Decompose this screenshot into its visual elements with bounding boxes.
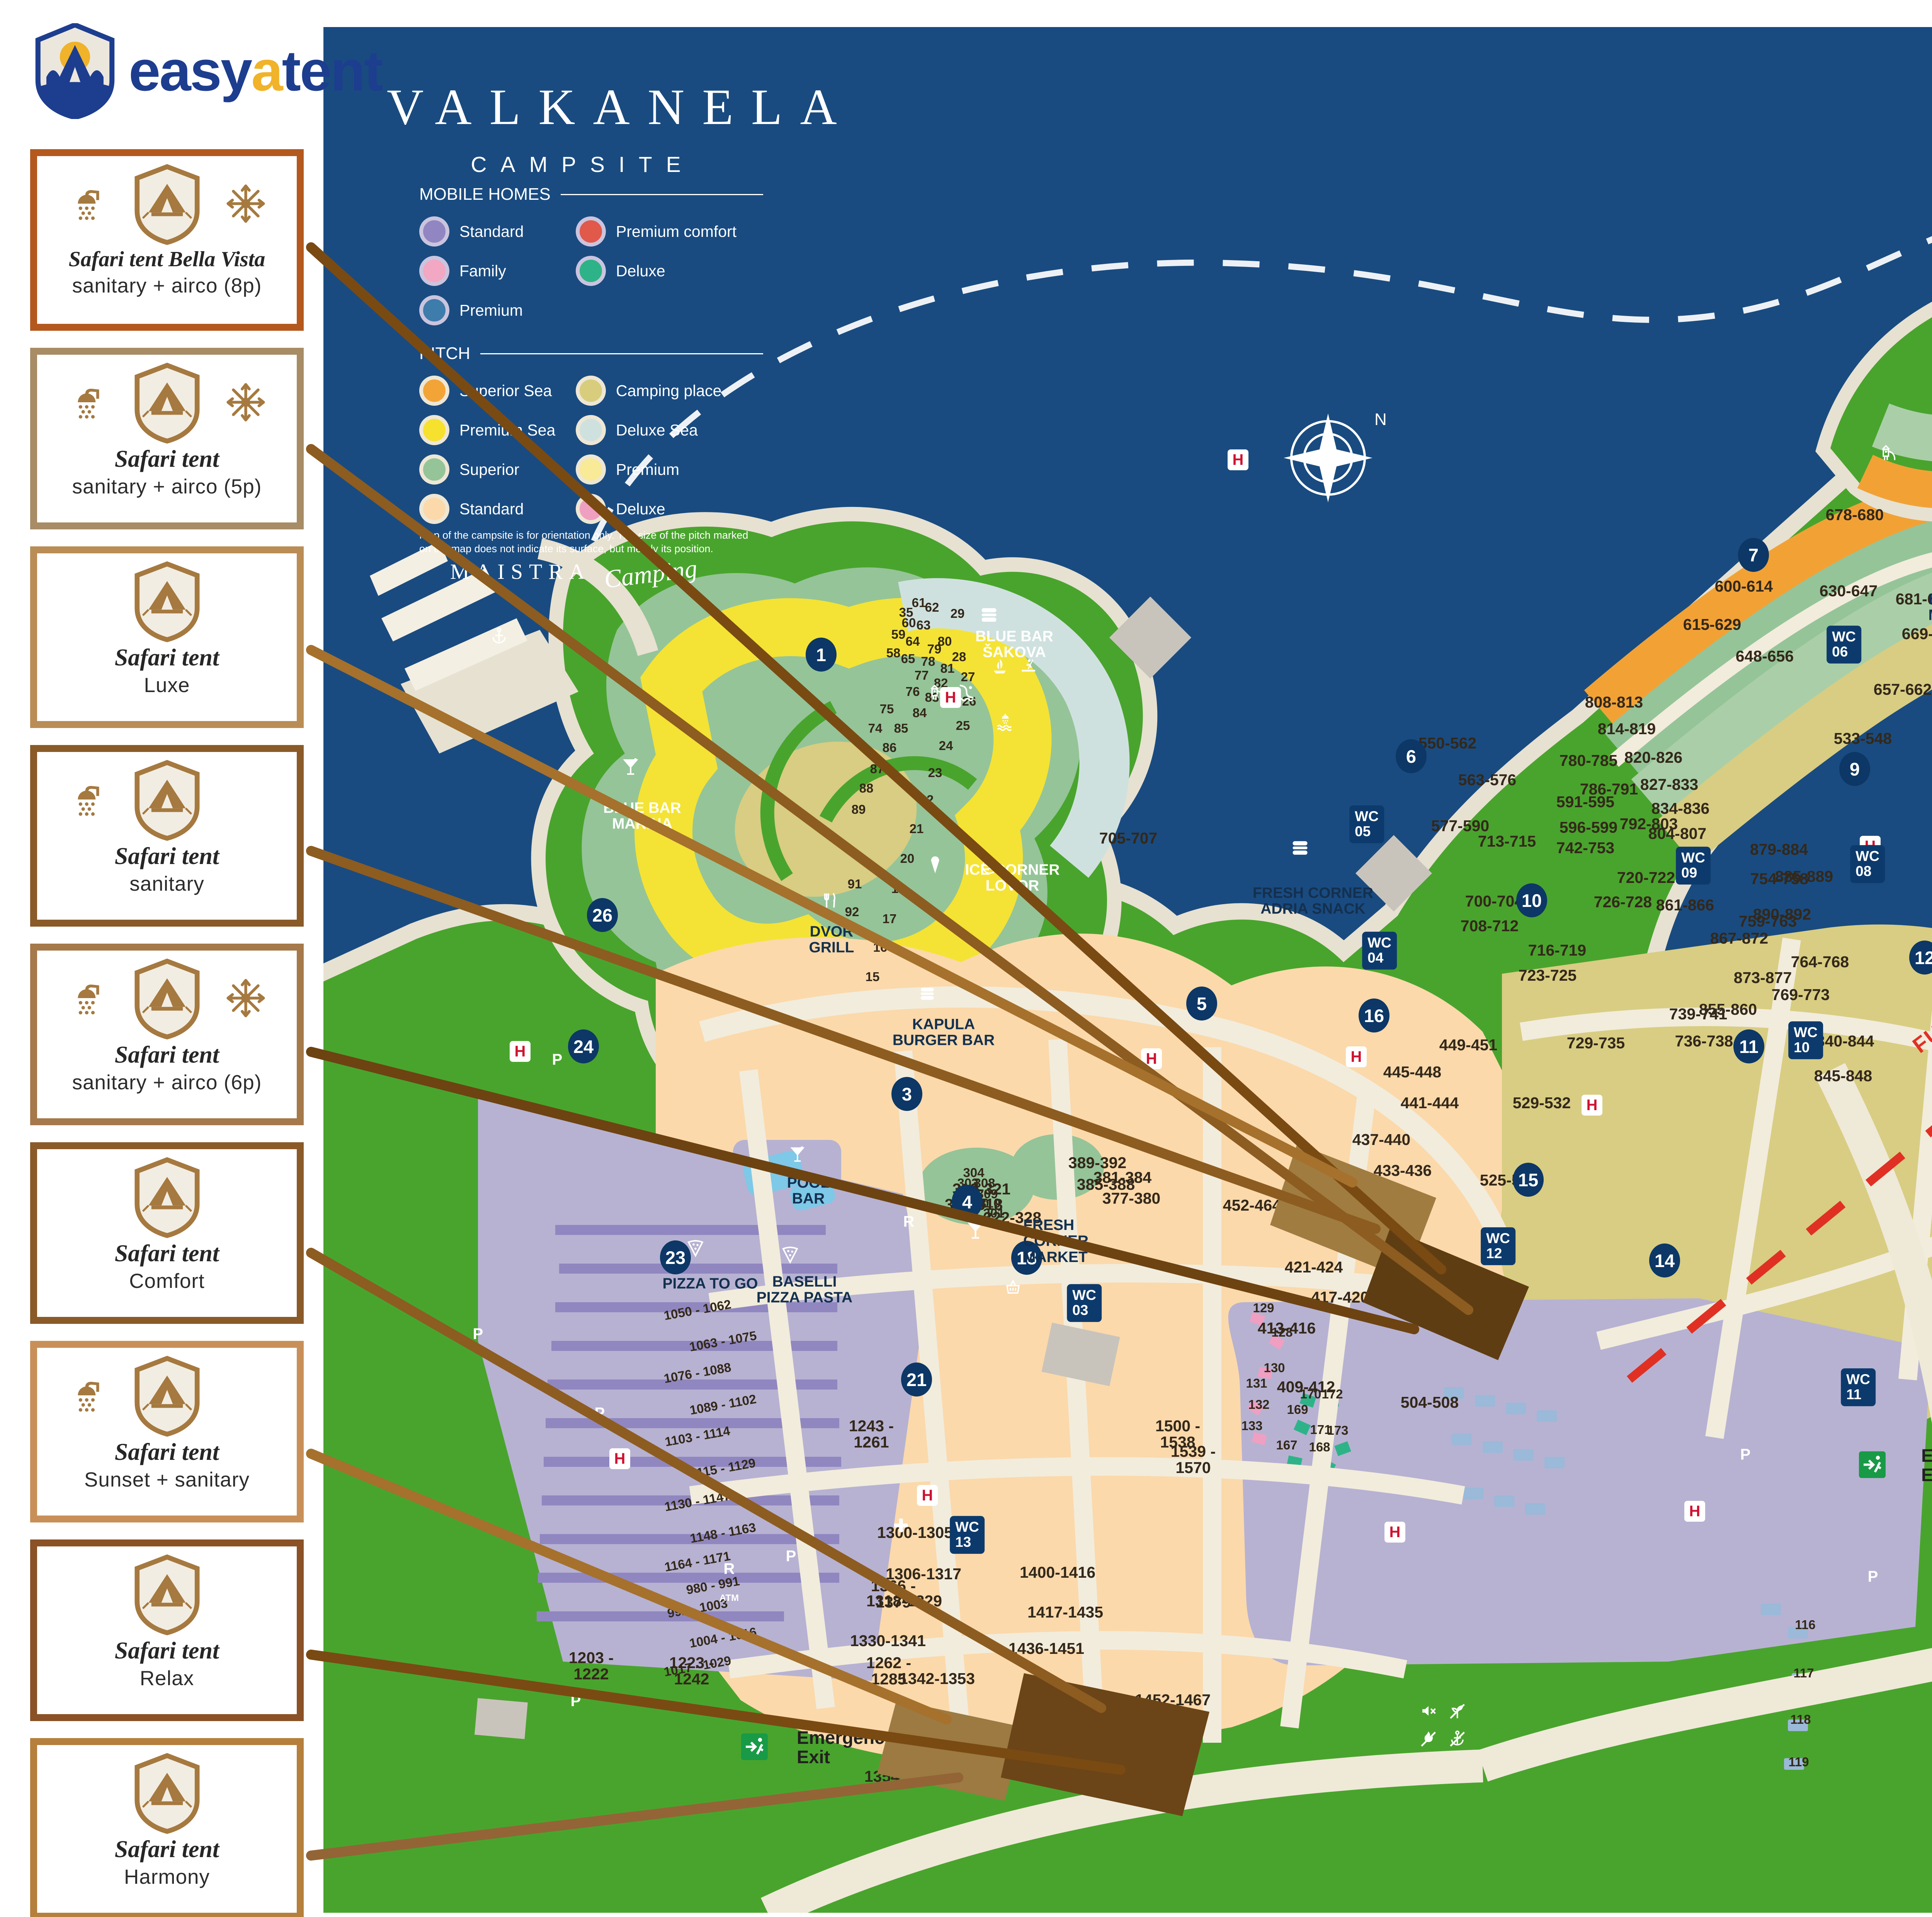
map-label: BLUE BAR ŠAKOVA: [975, 629, 1053, 661]
wc-number: 09: [1681, 866, 1705, 881]
shower-icon: [67, 179, 110, 229]
wc-text: WC: [1681, 850, 1705, 866]
legend-item: Premium Sea: [419, 413, 576, 447]
legend: MOBILE HOMES Standard Premium comfort Fa…: [419, 185, 763, 543]
safari-tent-card[interactable]: Safari tent Harmony: [30, 1738, 304, 1917]
cocktail-icon: [614, 751, 647, 783]
pitch-range-label: 504-508: [1401, 1395, 1459, 1411]
location-marker: 4: [952, 1185, 983, 1219]
pitch-range-label: 1243 - 1261: [849, 1418, 894, 1451]
pitch-range-label: 786-791: [1580, 781, 1638, 798]
map-icon: R: [716, 1556, 742, 1582]
card-title: Safari tent Bella Vista: [37, 248, 297, 270]
map-label: BLUE BAR MARINA: [603, 800, 681, 832]
legend-item: Premium comfort: [576, 215, 763, 248]
pitch-range-label: 441-444: [1401, 1095, 1459, 1111]
easyatent-wordmark: easyatent: [129, 38, 382, 104]
pitch-number: 58: [886, 646, 901, 660]
pitch-range-label: 452-464: [1223, 1197, 1281, 1214]
burger-icon: [1283, 831, 1317, 865]
hydrant-icon: H: [510, 1041, 531, 1062]
legend-label: Camping place: [616, 382, 722, 400]
snowflake-icon: [224, 973, 267, 1023]
burger-icon: [972, 598, 1006, 632]
pitch-range-label: 834-836: [1651, 801, 1709, 817]
wc-text: WC: [1355, 809, 1379, 824]
pitch-range-label: 1417-1435: [1027, 1604, 1103, 1621]
card-subtitle: Relax: [37, 1667, 297, 1690]
pitch-number: 23: [928, 765, 942, 780]
pitch-range-label: 845-848: [1814, 1068, 1872, 1084]
wc-number: 11: [1846, 1387, 1870, 1402]
safari-tent-shield-icon: [131, 561, 203, 640]
location-marker: 12: [1909, 941, 1932, 975]
hydrant-icon: H: [917, 1485, 938, 1506]
legend-item: Superior: [419, 453, 576, 486]
legend-label: Deluxe Sea: [616, 421, 698, 439]
card-subtitle: Harmony: [37, 1865, 297, 1889]
legend-label: Premium comfort: [616, 223, 736, 241]
wc-text: WC: [1367, 936, 1391, 951]
maistra-text: MAISTRA: [450, 560, 591, 584]
pitch-range-label: 509-518: [1432, 1313, 1490, 1330]
pitch-range-label: 1063 - 1075: [688, 1329, 757, 1354]
pitch-range-label: 417-420: [1311, 1289, 1369, 1306]
pitch-range-label: 425-428: [1337, 1225, 1395, 1241]
pitch-number: 74: [868, 721, 883, 736]
hydrant-icon: H: [1384, 1522, 1405, 1543]
card-title: Safari tent: [37, 646, 297, 670]
legend-label: Premium: [616, 461, 679, 479]
easyatent-shield-icon: [33, 23, 117, 119]
pizza-icon: [775, 1239, 805, 1269]
legend-item: Superior Sea: [419, 374, 576, 407]
pitch-range-label: 804-807: [1648, 826, 1706, 842]
legend-swatch: [576, 494, 606, 524]
wc-number: 06: [1832, 645, 1856, 660]
pitch-number: 169: [1287, 1402, 1308, 1417]
pitch-range-label: 808-813: [1585, 694, 1643, 711]
pitch-number: 15: [866, 970, 880, 984]
card-title: Safari tent: [37, 1837, 297, 1861]
hydrant-icon: H: [940, 687, 961, 708]
pitch-range-label: 827-833: [1640, 777, 1698, 793]
legend-swatch: [419, 415, 449, 445]
playground-icon: [1876, 439, 1903, 467]
map-label: ICE CORNER LOVOR: [965, 862, 1060, 894]
pitch-number: 92: [845, 905, 859, 919]
wc-marker: WC05: [1349, 805, 1384, 843]
legend-label: Standard: [459, 223, 524, 241]
safari-tent-shield-icon: [131, 1157, 203, 1236]
legend-label: Deluxe: [616, 262, 665, 280]
pitch-range-label: 1076 - 1088: [663, 1361, 732, 1385]
safari-tent-card[interactable]: Safari tent sanitary + airco (6p): [30, 944, 304, 1125]
hydrant-icon: H: [976, 1723, 997, 1744]
pitch-number: 62: [925, 600, 939, 615]
shower-icon: [67, 774, 110, 825]
map-label: POOL BAR: [787, 1175, 830, 1207]
legend-label: Superior: [459, 461, 519, 479]
wc-number: 05: [1355, 824, 1379, 839]
wc-number: 08: [1855, 864, 1879, 879]
pitch-number: 119: [1788, 1755, 1809, 1769]
legend-swatch: [576, 376, 606, 406]
map-disclaimer: Map of the campsite is for orientation o…: [419, 529, 752, 556]
legend-item: Deluxe: [576, 492, 763, 526]
plant-not-icon: [1444, 1697, 1471, 1725]
pitch-number: 132: [1248, 1397, 1269, 1412]
pitch-range-label: 550-562: [1418, 735, 1476, 752]
legend-item: Deluxe: [576, 254, 763, 287]
card-title: Safari tent: [37, 447, 297, 471]
pitch-range-label: 736-738: [1675, 1033, 1733, 1050]
pitch-range-label: 855-860: [1699, 1002, 1757, 1018]
safari-tent-shield-icon: [131, 1554, 203, 1633]
pitch-number: 21: [910, 822, 924, 836]
pitch-number: 86: [883, 740, 897, 755]
anchor-not-icon: [1444, 1725, 1471, 1753]
pitch-range-label: 615-629: [1683, 617, 1741, 633]
wc-number: 12: [1486, 1246, 1510, 1261]
location-marker: 15: [1513, 1163, 1544, 1197]
card-title: Safari tent: [37, 1639, 297, 1663]
pitch-range-label: 729-735: [1567, 1035, 1625, 1051]
legend-swatch: [419, 256, 449, 286]
safari-tent-shield-icon: [131, 1356, 203, 1435]
wc-number: 03: [1072, 1303, 1096, 1318]
pitch-number: 129: [1253, 1301, 1274, 1315]
pitch-range-label: 873-877: [1734, 970, 1792, 986]
burger-icon: [912, 979, 942, 1009]
pitch-number: 19: [891, 881, 906, 896]
anchor-ch-icon: [485, 622, 513, 650]
wc-number: 10: [1794, 1040, 1818, 1055]
pitch-number: 88: [859, 781, 874, 796]
pitch-range-label: 1223 - 1242: [669, 1655, 714, 1687]
pitch-number: 16: [873, 940, 888, 955]
legend-swatch: [576, 216, 606, 247]
pitch-range-label: 742-753: [1556, 840, 1614, 856]
location-marker: 16: [1359, 998, 1389, 1032]
location-marker: 5: [1186, 987, 1217, 1021]
location-marker: 6: [1396, 739, 1427, 773]
pitch-number: 20: [900, 851, 915, 866]
pitch-range-label: 1330-1341: [850, 1633, 926, 1649]
pitch-range-label: 814-819: [1598, 721, 1656, 737]
card-subtitle: Comfort: [37, 1269, 297, 1293]
wc-number: 04: [1367, 951, 1391, 966]
pitch-range-label: 421-424: [1285, 1259, 1343, 1276]
pitch-range-label: 1004 - 1016: [688, 1625, 757, 1650]
legend-item: Deluxe Sea: [576, 413, 763, 447]
wc-marker: WC08: [1850, 845, 1885, 883]
safari-tent-card[interactable]: Safari tent Luxe: [30, 546, 304, 728]
legend-swatch: [419, 295, 449, 325]
pitch-number: 64: [906, 634, 920, 649]
pitch-number: 63: [917, 618, 931, 633]
card-icons: [37, 1356, 297, 1435]
maistra-camping-script: Camping: [602, 554, 699, 595]
map-label: FRESH CORNER ADRIA SNACK: [1253, 885, 1373, 917]
wc-text: WC: [1072, 1288, 1096, 1303]
wc-text: WC: [955, 1520, 979, 1535]
safari-tent-card[interactable]: Safari tent Bella Vista sanitary + airco…: [30, 149, 304, 331]
pitch-range-label: 1050 - 1062: [663, 1298, 732, 1322]
legend-pitch: Superior Sea Camping place Premium Sea D…: [419, 374, 763, 526]
hydrant-icon: H: [1141, 1048, 1162, 1069]
location-marker: 20: [933, 1746, 964, 1780]
pitch-range-label: 533-548: [1834, 731, 1892, 747]
pitch-range-label: 385-388: [1077, 1177, 1135, 1193]
pitch-number: 59: [891, 627, 906, 642]
exit-icon: [1850, 1443, 1894, 1486]
snowflake-icon: [224, 179, 267, 229]
pitch-number: 84: [913, 706, 927, 720]
hydrant-icon: H: [1182, 1721, 1202, 1742]
legend-mobile-homes: Standard Premium comfort Family Deluxe P…: [419, 215, 763, 327]
location-marker: 23: [660, 1240, 691, 1274]
wc-marker: WC10: [1788, 1021, 1823, 1059]
pitch-number: 172: [1321, 1387, 1343, 1402]
legend-swatch: [576, 454, 606, 485]
pitch-number: 78: [921, 654, 935, 669]
wc-text: WC: [1794, 1025, 1818, 1040]
legend-label: Premium: [459, 301, 523, 320]
legend-label: Family: [459, 262, 506, 280]
legend-item: Family: [419, 254, 576, 287]
pitch-range-label: 1148 - 1163: [689, 1521, 757, 1545]
campsite-type: CAMPSITE: [369, 152, 782, 177]
location-marker: 3: [891, 1077, 922, 1111]
pitch-range-label: 1354 -: [864, 1769, 909, 1785]
legend-swatch: [576, 415, 606, 445]
pitch-number: 89: [852, 802, 866, 817]
pitch-number: 81: [940, 661, 955, 676]
shower-beach-icon: [992, 708, 1019, 736]
card-icons: [37, 1157, 297, 1236]
basket-icon: [999, 1274, 1027, 1301]
pitch-range-label: 890-892: [1753, 907, 1811, 923]
map-title-block: VALKANELA CAMPSITE: [369, 77, 782, 177]
map-label: DVOR GRILL: [809, 924, 854, 956]
card-icons: [37, 561, 297, 640]
location-marker: 21: [901, 1362, 932, 1397]
safari-tent-card[interactable]: Safari tent sanitary: [30, 745, 304, 927]
pitch-range-label: 1115 - 1129: [689, 1456, 757, 1481]
legend-swatch: [419, 454, 449, 485]
pitch-number: 131: [1246, 1376, 1267, 1391]
pitch-number: 128: [1271, 1325, 1293, 1340]
easyatent-logo: easyatent: [33, 23, 382, 119]
pitch-number: 25: [956, 718, 970, 733]
pitch-range-label: 840-844: [1816, 1033, 1874, 1050]
brand-a: a: [251, 39, 282, 103]
legend-item: Premium: [419, 294, 576, 327]
brand-tent: tent: [282, 39, 382, 103]
wc-text: WC: [1486, 1231, 1510, 1246]
pitch-number: 130: [1264, 1361, 1285, 1375]
pitch-range-label: 389-392: [1068, 1155, 1126, 1171]
pitch-range-label: 596-599: [1560, 820, 1617, 836]
pitch-range-label: 716-719: [1528, 942, 1586, 959]
cocktail-icon: [959, 1214, 993, 1248]
location-marker: 10: [1516, 883, 1547, 917]
pitch-number: 173: [1327, 1423, 1348, 1438]
pitch-range-label: 1400-1416: [1020, 1565, 1095, 1581]
pitch-range-label: 433-436: [1374, 1163, 1432, 1179]
card-icons: [37, 958, 297, 1038]
pitch-range-label: 861-866: [1656, 897, 1714, 913]
hydrant-icon: H: [1684, 1501, 1705, 1522]
wc-marker: WC11: [1841, 1368, 1876, 1406]
pitch-range-label: 1130 - 1147: [663, 1489, 731, 1513]
legend-swatch: [576, 256, 606, 286]
pitch-range-label: 705-707: [1099, 830, 1157, 847]
map-icon: ATM: [716, 1585, 742, 1611]
safari-tent-card[interactable]: Safari tent Sunset + sanitary: [30, 1341, 304, 1522]
restaurant-icon: [816, 886, 844, 915]
pitch-range-label: 563-576: [1458, 772, 1516, 788]
pitch-number: 91: [848, 877, 862, 891]
pitch-range-label: 1436-1451: [1009, 1641, 1084, 1657]
pitch-range-label: 720-722: [1617, 870, 1675, 886]
hydrant-icon: H: [1346, 1046, 1367, 1067]
card-subtitle: sanitary: [37, 872, 297, 896]
pitch-range-label: 726-728: [1594, 894, 1652, 910]
legend-label: Superior Sea: [459, 382, 552, 400]
wc-marker: WC06: [1827, 626, 1861, 663]
pitch-range-label: 1539 - 1570: [1171, 1444, 1216, 1476]
pitch-number: 118: [1790, 1712, 1811, 1727]
legend-item: Standard: [419, 492, 576, 526]
legend-heading-mobile-homes: MOBILE HOMES: [419, 185, 763, 204]
legend-swatch: [419, 494, 449, 524]
card-title: Safari tent: [37, 844, 297, 868]
pitch-range-label: 1089 - 1102: [689, 1392, 757, 1417]
card-icons: [37, 362, 297, 442]
pitch-number: 170: [1300, 1387, 1321, 1402]
shower-icon: [67, 1370, 110, 1420]
safari-tent-shield-icon: [131, 362, 203, 442]
map-icon: P: [1731, 1441, 1759, 1468]
hydrant-icon: H: [1582, 1095, 1602, 1116]
hydrant-icon: H: [609, 1448, 630, 1469]
pitch-number: 116: [1795, 1618, 1815, 1632]
safari-tent-shield-icon: [131, 760, 203, 839]
pitch-range-label: 700-704: [1465, 893, 1523, 910]
map-icon: R: [891, 1204, 927, 1240]
pitch-range-label: 764-768: [1791, 954, 1849, 970]
location-marker: 14: [1649, 1243, 1680, 1277]
pitch-number: 22: [920, 793, 934, 807]
legend-swatch: [419, 216, 449, 247]
location-marker: 26: [587, 898, 618, 932]
map-icon: P: [464, 1320, 492, 1348]
location-marker: 7: [1738, 538, 1769, 572]
campsite-name: VALKANELA: [369, 77, 782, 136]
map-label: Emergency Exit: [1921, 1446, 1932, 1485]
wc-marker: WC03: [1067, 1284, 1102, 1322]
pitch-number: 168: [1309, 1440, 1330, 1454]
pitch-range-label: 1203 - 1222: [569, 1650, 614, 1682]
safari-tent-shield-icon: [131, 1753, 203, 1832]
map-icon: P: [1859, 1563, 1887, 1590]
pitch-range-label: 879-884: [1750, 842, 1808, 858]
pitch-range-label: 769-773: [1772, 987, 1830, 1003]
pitch-range-label: 867-872: [1710, 930, 1768, 947]
map-label: Emergency Exit: [797, 1728, 895, 1767]
pitch-number: 167: [1276, 1438, 1297, 1453]
safari-tent-card[interactable]: Safari tent sanitary + airco (5p): [30, 348, 304, 529]
pitch-range-label: 678-680: [1826, 507, 1884, 523]
card-title: Safari tent: [37, 1242, 297, 1266]
pitch-range-label: 1366 - 1379: [871, 1578, 916, 1611]
card-title: Safari tent: [37, 1440, 297, 1464]
wc-marker: WC09: [1676, 847, 1711, 885]
legend-item: Premium: [576, 453, 763, 486]
card-icons: [37, 164, 297, 243]
valkanela-campsite-map-page: N VALKANELA CAMPSITE MOBILE HOMES Standa…: [0, 0, 1932, 1917]
card-icons: [37, 1753, 297, 1832]
pitch-number: 87: [870, 762, 884, 776]
left-column: easyatent Safari tent: [0, 0, 323, 1917]
pitch-number: 117: [1793, 1666, 1814, 1681]
pitch-number: 85: [894, 721, 908, 736]
pitch-range-label: 723-725: [1519, 968, 1577, 984]
location-marker: 1: [806, 638, 837, 672]
map-label: BASELLI PIZZA PASTA: [757, 1274, 852, 1306]
pitch-range-label: 885-889: [1775, 869, 1833, 885]
pitch-range-label: 681-687: [1896, 591, 1932, 607]
map-icon: P: [562, 1687, 590, 1715]
pitch-range-label: 577-590: [1431, 818, 1489, 834]
pitch-range-label: 648-656: [1736, 648, 1794, 665]
legend-label: Premium Sea: [459, 421, 555, 439]
pitch-range-label: 1342-1353: [899, 1671, 975, 1687]
wc-marker: WC12: [1481, 1227, 1515, 1265]
location-marker: 11: [1733, 1029, 1764, 1063]
pitch-number: 133: [1241, 1419, 1262, 1433]
card-subtitle: sanitary + airco (5p): [37, 475, 297, 498]
pitch-range-label: 600-614: [1715, 578, 1773, 595]
wc-marker: WC04: [1362, 932, 1397, 970]
pitch-number: 65: [901, 651, 915, 666]
pitch-range-label: 529-532: [1513, 1095, 1571, 1111]
legend-item: Camping place: [576, 374, 763, 407]
safari-tent-shield-icon: [131, 958, 203, 1038]
legend-item: Standard: [419, 215, 576, 248]
safari-tent-card[interactable]: Safari tent Comfort: [30, 1142, 304, 1324]
maistra-watermark: MAISTRA Camping: [450, 560, 697, 589]
pitch-range-label: 820-826: [1624, 750, 1682, 766]
safari-tent-shield-icon: [131, 164, 203, 243]
shower-icon: [67, 377, 110, 427]
pitch-range-label: 1452-1467: [1135, 1692, 1211, 1708]
safari-tent-card[interactable]: Safari tent Relax: [30, 1539, 304, 1721]
pitch-range-label: 780-785: [1560, 753, 1617, 769]
hydrant-icon: H: [1228, 449, 1248, 470]
silence-icon: [1415, 1697, 1442, 1725]
map-icon: P: [543, 1046, 571, 1073]
wc-text: WC: [1832, 629, 1856, 645]
wc-number: 13: [955, 1535, 979, 1550]
card-subtitle: Sunset + sanitary: [37, 1468, 297, 1492]
pitch-range-label: 1103 - 1114: [664, 1424, 731, 1449]
legend-heading-pitch: PITCH: [419, 344, 763, 363]
pitch-range-label: 437-440: [1352, 1132, 1410, 1148]
map-label: FRESH CORNER MARKET: [1023, 1217, 1088, 1265]
